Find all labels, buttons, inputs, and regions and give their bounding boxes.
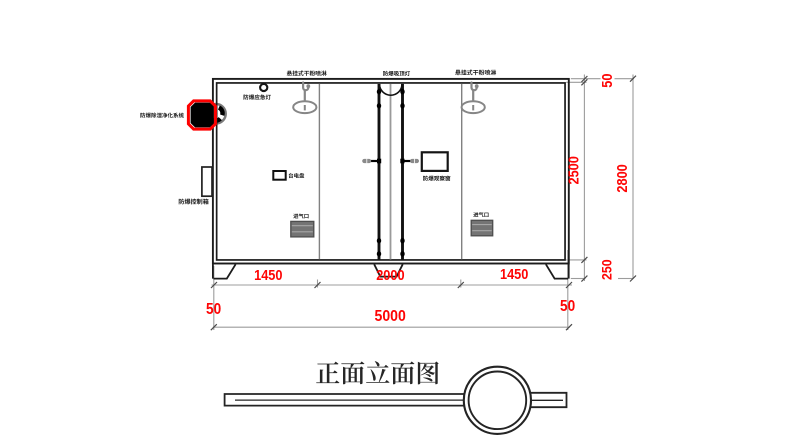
svg-text:2500: 2500 [566, 156, 582, 185]
svg-text:1450: 1450 [500, 266, 529, 282]
svg-text:1450: 1450 [254, 267, 283, 283]
svg-text:250: 250 [599, 259, 615, 280]
svg-text:50: 50 [560, 298, 575, 315]
svg-text:50: 50 [599, 73, 615, 88]
svg-text:50: 50 [206, 301, 221, 318]
svg-text:2800: 2800 [614, 164, 630, 193]
svg-text:2000: 2000 [376, 267, 405, 283]
svg-text:5000: 5000 [375, 307, 406, 325]
